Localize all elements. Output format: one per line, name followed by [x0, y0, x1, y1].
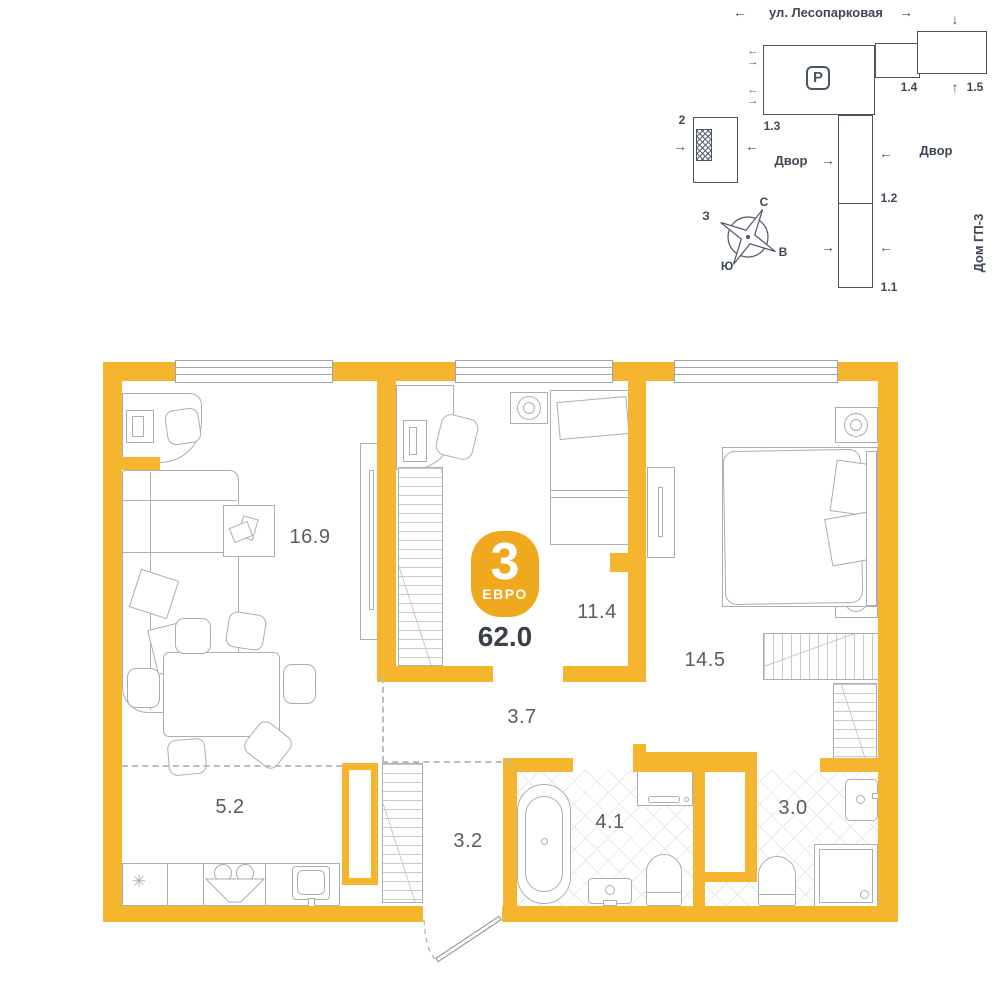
fridge-snowflake-icon: ✳	[128, 872, 150, 892]
sofa-armrest-line	[123, 500, 237, 501]
parking-icon: P	[806, 66, 830, 90]
wall	[705, 872, 745, 882]
entrance-door	[418, 912, 510, 970]
area-label-hallway: 3.7	[492, 706, 552, 729]
counter-divider	[167, 863, 168, 906]
zone-boundary-dashed	[382, 677, 384, 762]
current-unit-marker	[696, 129, 712, 161]
kitchen-sink-basin	[297, 870, 325, 895]
entrance-arrow-icon: →	[744, 96, 762, 107]
street-arrow-left-icon: ←	[728, 5, 752, 19]
wall-stub	[633, 744, 646, 772]
desk-chair	[164, 407, 203, 446]
area-label-living: 16.9	[280, 526, 340, 549]
window	[175, 360, 333, 383]
wall-stub	[610, 553, 646, 572]
compass-east-label: В	[776, 245, 790, 259]
area-label-bedroom2: 11.4	[567, 601, 627, 624]
arrow-right-icon: →	[818, 153, 838, 167]
toilet-tank-line	[647, 892, 681, 893]
wall	[103, 906, 423, 922]
bed-pillow	[556, 396, 629, 440]
street-label: ул. Лесопарковая	[769, 5, 879, 20]
tv-screen	[369, 470, 374, 610]
shower-drain-icon	[860, 890, 869, 899]
hall-closet	[382, 763, 423, 903]
street-arrow-right-icon: →	[894, 5, 918, 19]
rooms-count: 3	[471, 536, 539, 588]
building-divider	[838, 203, 873, 204]
house-name-label: Дом ГП-3	[971, 205, 985, 281]
lamp-icon	[523, 402, 535, 414]
lamp-icon	[850, 419, 862, 431]
label-building-1-1: 1.1	[877, 280, 901, 294]
blanket-line	[551, 490, 636, 491]
dining-chair	[175, 618, 211, 654]
wall	[103, 362, 122, 922]
sink-drain-icon	[856, 795, 865, 804]
building-1-5	[917, 31, 987, 74]
label-building-2: 2	[676, 113, 688, 127]
toilet-tank-line	[759, 894, 795, 895]
apartment-type: ЕВРО	[471, 586, 539, 602]
wall	[878, 362, 898, 922]
floorplan-page: ул. Лесопарковая ← → ↓ P 2 1.3 1.4 1.5 1…	[0, 0, 1000, 1000]
area-label-entry: 3.2	[438, 830, 498, 853]
label-building-1-5: 1.5	[963, 80, 987, 94]
wardrobe	[833, 683, 877, 762]
arrow-right-icon: →	[670, 139, 690, 153]
arrow-left-icon: ←	[742, 139, 762, 153]
arrow-right-icon: →	[818, 240, 838, 254]
wall	[693, 770, 705, 906]
arrow-up-icon: ↑	[948, 80, 962, 94]
wardrobe	[398, 467, 443, 666]
label-building-1-3: 1.3	[760, 119, 784, 133]
arrow-down-icon: ↓	[948, 12, 962, 26]
blanket-line	[551, 497, 636, 498]
washing-machine-knob	[684, 797, 689, 802]
dining-chair	[167, 737, 208, 776]
dining-chair	[283, 664, 316, 704]
compass-south-label: Ю	[720, 259, 734, 273]
total-area: 62.0	[460, 621, 550, 653]
label-building-1-4: 1.4	[897, 80, 921, 94]
monitor-screen	[132, 416, 144, 437]
zone-boundary-dashed	[382, 761, 512, 763]
courtyard-left-label: Двор	[770, 153, 812, 168]
wall	[503, 758, 573, 772]
area-label-bathroom: 4.1	[580, 811, 640, 834]
toilet	[646, 854, 682, 906]
entrance-arrow-icon: →	[744, 57, 762, 68]
wall	[633, 752, 757, 772]
area-label-bedroom1: 14.5	[675, 649, 735, 672]
counter-divider	[265, 863, 266, 906]
arrow-left-icon: ←	[876, 146, 896, 160]
wall-niche-stub	[103, 457, 160, 470]
counter-divider	[203, 863, 204, 906]
toilet	[758, 856, 796, 906]
sofa-cushion-line	[123, 552, 237, 553]
plumbing-shaft	[705, 770, 745, 872]
wall	[628, 381, 646, 682]
wall	[377, 381, 396, 682]
kitchen-shaft	[342, 763, 378, 885]
wardrobe	[763, 633, 893, 680]
bathtub-drain-icon	[541, 838, 548, 845]
compass-west-label: З	[699, 209, 713, 223]
compass-north-label: С	[757, 195, 771, 209]
wall	[502, 906, 898, 922]
courtyard-right-label: Двор	[915, 143, 957, 158]
monitor-screen	[409, 427, 417, 455]
wall	[333, 362, 455, 381]
wall	[377, 666, 493, 682]
area-label-wc: 3.0	[763, 797, 823, 820]
wall	[503, 762, 517, 922]
zone-boundary-dashed	[122, 765, 342, 767]
arrow-left-icon: ←	[876, 240, 896, 254]
window	[674, 360, 838, 383]
wall	[820, 758, 898, 772]
cooker-hood-icon	[205, 878, 265, 904]
building-1-4	[875, 43, 920, 78]
wall	[745, 770, 757, 882]
apartment-badge: 3 ЕВРО	[471, 531, 539, 617]
wall	[613, 362, 674, 381]
label-building-1-2: 1.2	[877, 191, 901, 205]
window	[455, 360, 613, 383]
washing-machine-panel	[648, 796, 680, 803]
area-label-kitchen: 5.2	[200, 796, 260, 819]
dining-chair	[224, 610, 267, 652]
bed-headboard	[866, 451, 877, 606]
sink-drain-icon	[605, 885, 615, 895]
building-1-1-1-2	[838, 115, 873, 288]
dining-chair	[127, 668, 160, 708]
tv-screen	[658, 487, 663, 537]
